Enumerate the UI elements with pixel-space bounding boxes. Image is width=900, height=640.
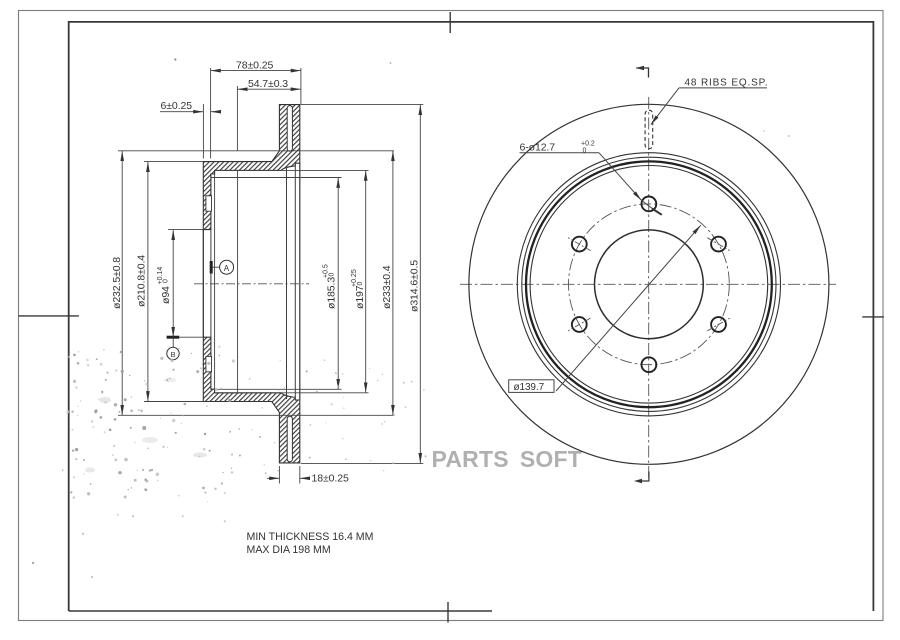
svg-text:54.7±0.3: 54.7±0.3 bbox=[248, 78, 288, 90]
svg-text:+0.2: +0.2 bbox=[581, 141, 595, 148]
svg-text:78±0.25: 78±0.25 bbox=[236, 60, 273, 72]
svg-text:6±0.25: 6±0.25 bbox=[161, 100, 193, 112]
svg-text:18±0.25: 18±0.25 bbox=[312, 473, 349, 485]
svg-text:ø185.3: ø185.3 bbox=[326, 277, 338, 309]
svg-text:ø233±0.4: ø233±0.4 bbox=[381, 265, 393, 309]
svg-text:0: 0 bbox=[328, 273, 335, 277]
svg-text:0: 0 bbox=[163, 279, 170, 283]
svg-text:MIN THICKNESS 16.4 MM: MIN THICKNESS 16.4 MM bbox=[247, 531, 374, 543]
svg-text:6-ø12.7: 6-ø12.7 bbox=[520, 141, 556, 153]
svg-text:ø210.8±0.4: ø210.8±0.4 bbox=[136, 255, 148, 307]
svg-text:ø197: ø197 bbox=[354, 285, 366, 309]
svg-text:ø314.6±0.5: ø314.6±0.5 bbox=[409, 260, 421, 312]
svg-text:0: 0 bbox=[357, 282, 364, 286]
svg-text:0: 0 bbox=[583, 148, 587, 155]
svg-text:MAX DIA 198 MM: MAX DIA 198 MM bbox=[247, 544, 331, 556]
svg-text:ø94: ø94 bbox=[160, 286, 172, 304]
svg-text:ø139.7: ø139.7 bbox=[514, 382, 545, 393]
svg-text:B: B bbox=[171, 350, 176, 359]
svg-text:48 RIBS EQ.SP.: 48 RIBS EQ.SP. bbox=[685, 78, 769, 89]
svg-text:A: A bbox=[224, 264, 230, 273]
svg-text:PARTS SOFT: PARTS SOFT bbox=[432, 446, 582, 472]
svg-text:ø232.5±0.8: ø232.5±0.8 bbox=[111, 257, 123, 309]
